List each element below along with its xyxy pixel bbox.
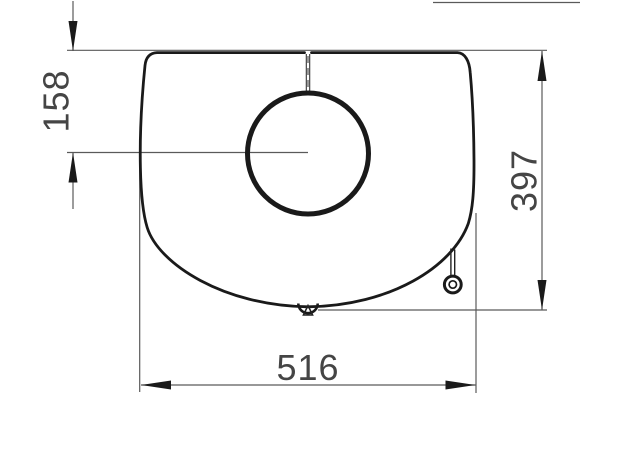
- arrowhead-down-icon: [538, 280, 547, 310]
- arrowhead-left-icon: [141, 381, 171, 390]
- arrowhead-down-icon: [69, 21, 78, 51]
- technical-drawing-canvas: 158 397 516: [0, 0, 624, 460]
- dim-label-397: 397: [504, 149, 545, 212]
- handle-ring-outer: [444, 276, 461, 293]
- arrowhead-right-icon: [446, 381, 476, 390]
- arrowhead-up-icon: [69, 153, 78, 183]
- dim-label-516: 516: [276, 347, 339, 388]
- dim-label-158: 158: [36, 69, 77, 132]
- handle-ring-inner: [449, 281, 456, 288]
- stove-top-view-drawing: 158 397 516: [0, 0, 624, 460]
- arrowhead-up-icon: [538, 51, 547, 81]
- flue-collar-circle: [248, 93, 369, 214]
